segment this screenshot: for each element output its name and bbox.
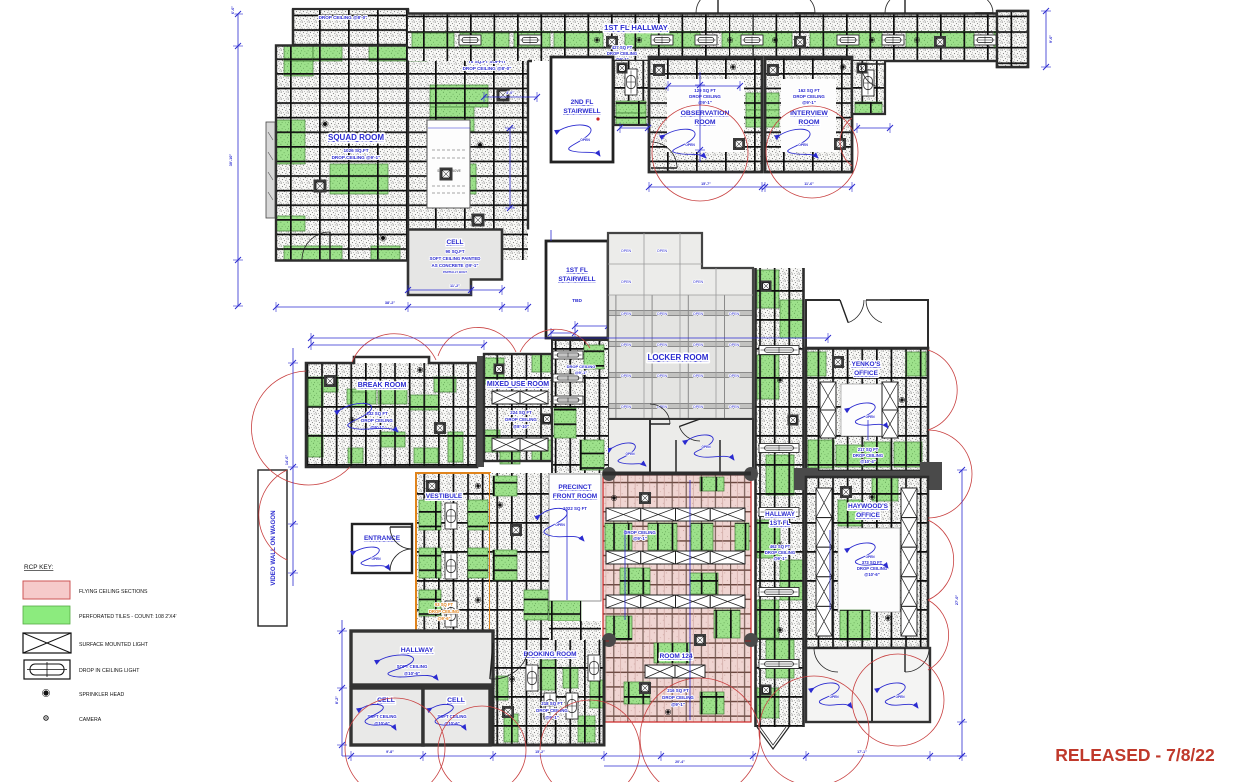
svg-text:OPEN: OPEN [729, 343, 740, 347]
svg-text:@10'-6": @10'-6" [864, 572, 879, 577]
svg-text:AS CONCRETE @9'-1": AS CONCRETE @9'-1" [432, 263, 479, 268]
svg-text:DROP CEILING: DROP CEILING [853, 453, 883, 458]
svg-text:20'-4": 20'-4" [675, 760, 685, 764]
svg-text:@9'-1": @9'-1" [802, 100, 816, 105]
svg-text:OPEN: OPEN [625, 452, 635, 456]
svg-text:@9'-6": @9'-6" [437, 616, 450, 621]
svg-text:@9'-1": @9'-1" [671, 702, 685, 707]
svg-text:OPEN: OPEN [621, 280, 632, 284]
svg-text:INTERVIEW: INTERVIEW [790, 110, 828, 117]
svg-text:OPEN: OPEN [371, 557, 381, 561]
svg-text:OPEN: OPEN [865, 555, 875, 559]
svg-text:DROP CEILING: DROP CEILING [857, 566, 887, 571]
svg-text:218 SQ FT: 218 SQ FT [541, 701, 563, 706]
svg-text:OPEN: OPEN [693, 280, 704, 284]
svg-text:1ST FL: 1ST FL [770, 520, 791, 527]
svg-text:HAYWOOD'S: HAYWOOD'S [848, 503, 889, 510]
svg-text:DROP CEILING: DROP CEILING [765, 550, 795, 555]
svg-text:DROP IN CEILING LIGHT: DROP IN CEILING LIGHT [79, 668, 140, 674]
svg-text:OPEN: OPEN [693, 405, 704, 409]
svg-text:OBSERVATION: OBSERVATION [681, 110, 730, 117]
svg-text:2ND FL: 2ND FL [571, 99, 594, 106]
svg-text:DROP CEILING: DROP CEILING [624, 530, 656, 535]
svg-text:OPEN: OPEN [657, 249, 668, 253]
svg-text:OPEN: OPEN [657, 343, 668, 347]
svg-text:OPEN: OPEN [865, 415, 875, 419]
svg-text:ROOM: ROOM [694, 119, 715, 126]
svg-text:93 SQ FT: 93 SQ FT [435, 602, 454, 607]
svg-text:8'-2": 8'-2" [335, 696, 339, 704]
svg-text:OPEN: OPEN [621, 249, 632, 253]
svg-text:VESTIBULE: VESTIBULE [426, 493, 463, 500]
svg-text:4'-0": 4'-0" [506, 91, 514, 95]
svg-text:27'-0": 27'-0" [955, 595, 959, 606]
svg-text:OPEN: OPEN [729, 374, 740, 378]
svg-text:OPEN: OPEN [621, 374, 632, 378]
svg-text:DROP CEILING: DROP CEILING [793, 94, 825, 99]
svg-text:DROP CEILING @8'-0": DROP CEILING @8'-0" [463, 66, 512, 71]
svg-text:38'-2": 38'-2" [385, 301, 396, 305]
svg-text:LOCKER ROOM: LOCKER ROOM [648, 353, 709, 362]
svg-text:DROP CEILING: DROP CEILING [361, 418, 393, 423]
svg-text:OPEN: OPEN [621, 312, 632, 316]
svg-text:@10'-6": @10'-6" [404, 671, 420, 676]
svg-text:FLYING CEILING SECTIONS: FLYING CEILING SECTIONS [79, 589, 148, 595]
svg-text:DROP CEILING @9'-1": DROP CEILING @9'-1" [332, 155, 381, 160]
svg-text:6'-6": 6'-6" [231, 6, 235, 14]
svg-text:224 SQ FT: 224 SQ FT [510, 410, 532, 415]
svg-text:30'-10": 30'-10" [229, 154, 233, 167]
svg-text:@10'-4": @10'-4" [860, 459, 875, 464]
svg-text:DROP CEILING: DROP CEILING [607, 51, 637, 56]
svg-text:HALLWAY: HALLWAY [401, 647, 434, 654]
svg-text:OPEN: OPEN [621, 405, 632, 409]
svg-text:@9'-1": @9'-1" [773, 556, 786, 561]
svg-text:OPEN: OPEN [829, 695, 839, 699]
svg-text:SQUAD ROOM: SQUAD ROOM [328, 133, 384, 142]
svg-text:OPEN: OPEN [729, 312, 740, 316]
svg-text:OFFICE: OFFICE [854, 370, 878, 377]
svg-text:1ST FL HALLWAY: 1ST FL HALLWAY [604, 23, 668, 32]
svg-text:129 SQ FT: 129 SQ FT [694, 88, 716, 93]
svg-text:1026 SQ.FT: 1026 SQ.FT [343, 148, 368, 153]
svg-text:YENKO'S: YENKO'S [852, 361, 882, 368]
svg-text:9'-8": 9'-8" [386, 750, 394, 754]
svg-text:STAIRWELL: STAIRWELL [563, 108, 600, 115]
svg-text:DROP CEILING: DROP CEILING [567, 364, 596, 369]
svg-text:SPRINKLER HEAD: SPRINKLER HEAD [79, 692, 125, 698]
svg-text:OPEN: OPEN [729, 405, 740, 409]
svg-text:STAIRWELL: STAIRWELL [558, 276, 595, 283]
svg-text:OFFICE: OFFICE [856, 512, 880, 519]
svg-text:DROP CEILING: DROP CEILING [429, 609, 459, 614]
svg-text:DROP CEILING: DROP CEILING [536, 708, 568, 713]
svg-text:9'-6": 9'-6" [1049, 35, 1053, 43]
svg-text:OPEN: OPEN [693, 374, 704, 378]
svg-text:TBD: TBD [572, 298, 582, 304]
svg-text:17'-1": 17'-1" [857, 750, 867, 754]
svg-text:RCP KEY:: RCP KEY: [24, 564, 54, 571]
svg-text:SURFACE MOUNTED LIGHT: SURFACE MOUNTED LIGHT [79, 642, 149, 648]
svg-text:1ST FL: 1ST FL [566, 267, 588, 274]
svg-text:15'-7": 15'-7" [701, 182, 711, 186]
svg-text:PERFORATED TILES - COUNT: 108: PERFORATED TILES - COUNT: 108 2'X4' [79, 614, 177, 620]
svg-text:OPEN: OPEN [895, 695, 905, 699]
svg-text:OPEN: OPEN [693, 343, 704, 347]
svg-text:CELL: CELL [447, 697, 465, 704]
svg-text:OPEN: OPEN [798, 143, 808, 147]
svg-text:MIXED USE ROOM: MIXED USE ROOM [487, 381, 549, 388]
svg-text:90 SQ.FT: 90 SQ.FT [445, 249, 464, 254]
svg-text:162 SQ FT: 162 SQ FT [798, 88, 820, 93]
svg-text:OPEN: OPEN [555, 523, 565, 527]
svg-text:OPEN: OPEN [621, 343, 632, 347]
svg-text:DROP CEILING @8'-0": DROP CEILING @8'-0" [319, 15, 368, 20]
svg-text:OPEN: OPEN [580, 138, 590, 142]
svg-text:OPEN: OPEN [693, 312, 704, 316]
svg-text:DROP CEILING: DROP CEILING [689, 94, 721, 99]
svg-text:FRONT ROOM: FRONT ROOM [553, 493, 597, 500]
svg-text:@9'-1": @9'-1" [575, 370, 588, 375]
svg-text:PARTIALLY BUILT: PARTIALLY BUILT [443, 270, 467, 274]
svg-text:ROOM 124: ROOM 124 [660, 653, 693, 660]
svg-text:DROP CEILING: DROP CEILING [662, 695, 694, 700]
svg-text:14'-6": 14'-6" [285, 455, 289, 466]
svg-text:RELEASED - 7/8/22: RELEASED - 7/8/22 [1055, 745, 1215, 765]
svg-text:@8'-10": @8'-10" [513, 424, 529, 429]
svg-text:11'-6": 11'-6" [804, 182, 814, 186]
svg-text:OPEN: OPEN [701, 445, 711, 449]
svg-text:462 SQ FT: 462 SQ FT [770, 544, 791, 549]
svg-text:BOOKING ROOM: BOOKING ROOM [523, 651, 576, 658]
svg-text:DROP CEILING: DROP CEILING [505, 417, 537, 422]
svg-text:OPEN: OPEN [657, 374, 668, 378]
svg-text:BREAK ROOM: BREAK ROOM [358, 382, 407, 389]
svg-text:@9'-1": @9'-1" [633, 536, 647, 541]
svg-text:15'-2": 15'-2" [535, 750, 545, 754]
svg-text:HALLWAY: HALLWAY [765, 511, 796, 518]
svg-text:OPEN: OPEN [685, 143, 695, 147]
svg-text:OPEN: OPEN [657, 312, 668, 316]
svg-text:ROOM: ROOM [798, 119, 819, 126]
svg-text:CELL: CELL [447, 239, 464, 246]
svg-text:427 SQ FT: 427 SQ FT [612, 45, 633, 50]
svg-text:CAMERA: CAMERA [79, 717, 102, 723]
svg-text:PRECINCT: PRECINCT [558, 484, 591, 491]
svg-text:216 SQ FT: 216 SQ FT [667, 688, 689, 693]
svg-text:217 SQ FT: 217 SQ FT [858, 447, 879, 452]
svg-text:11'-2": 11'-2" [450, 284, 460, 288]
svg-text:SOFT CEILING PAINTED: SOFT CEILING PAINTED [430, 256, 481, 261]
